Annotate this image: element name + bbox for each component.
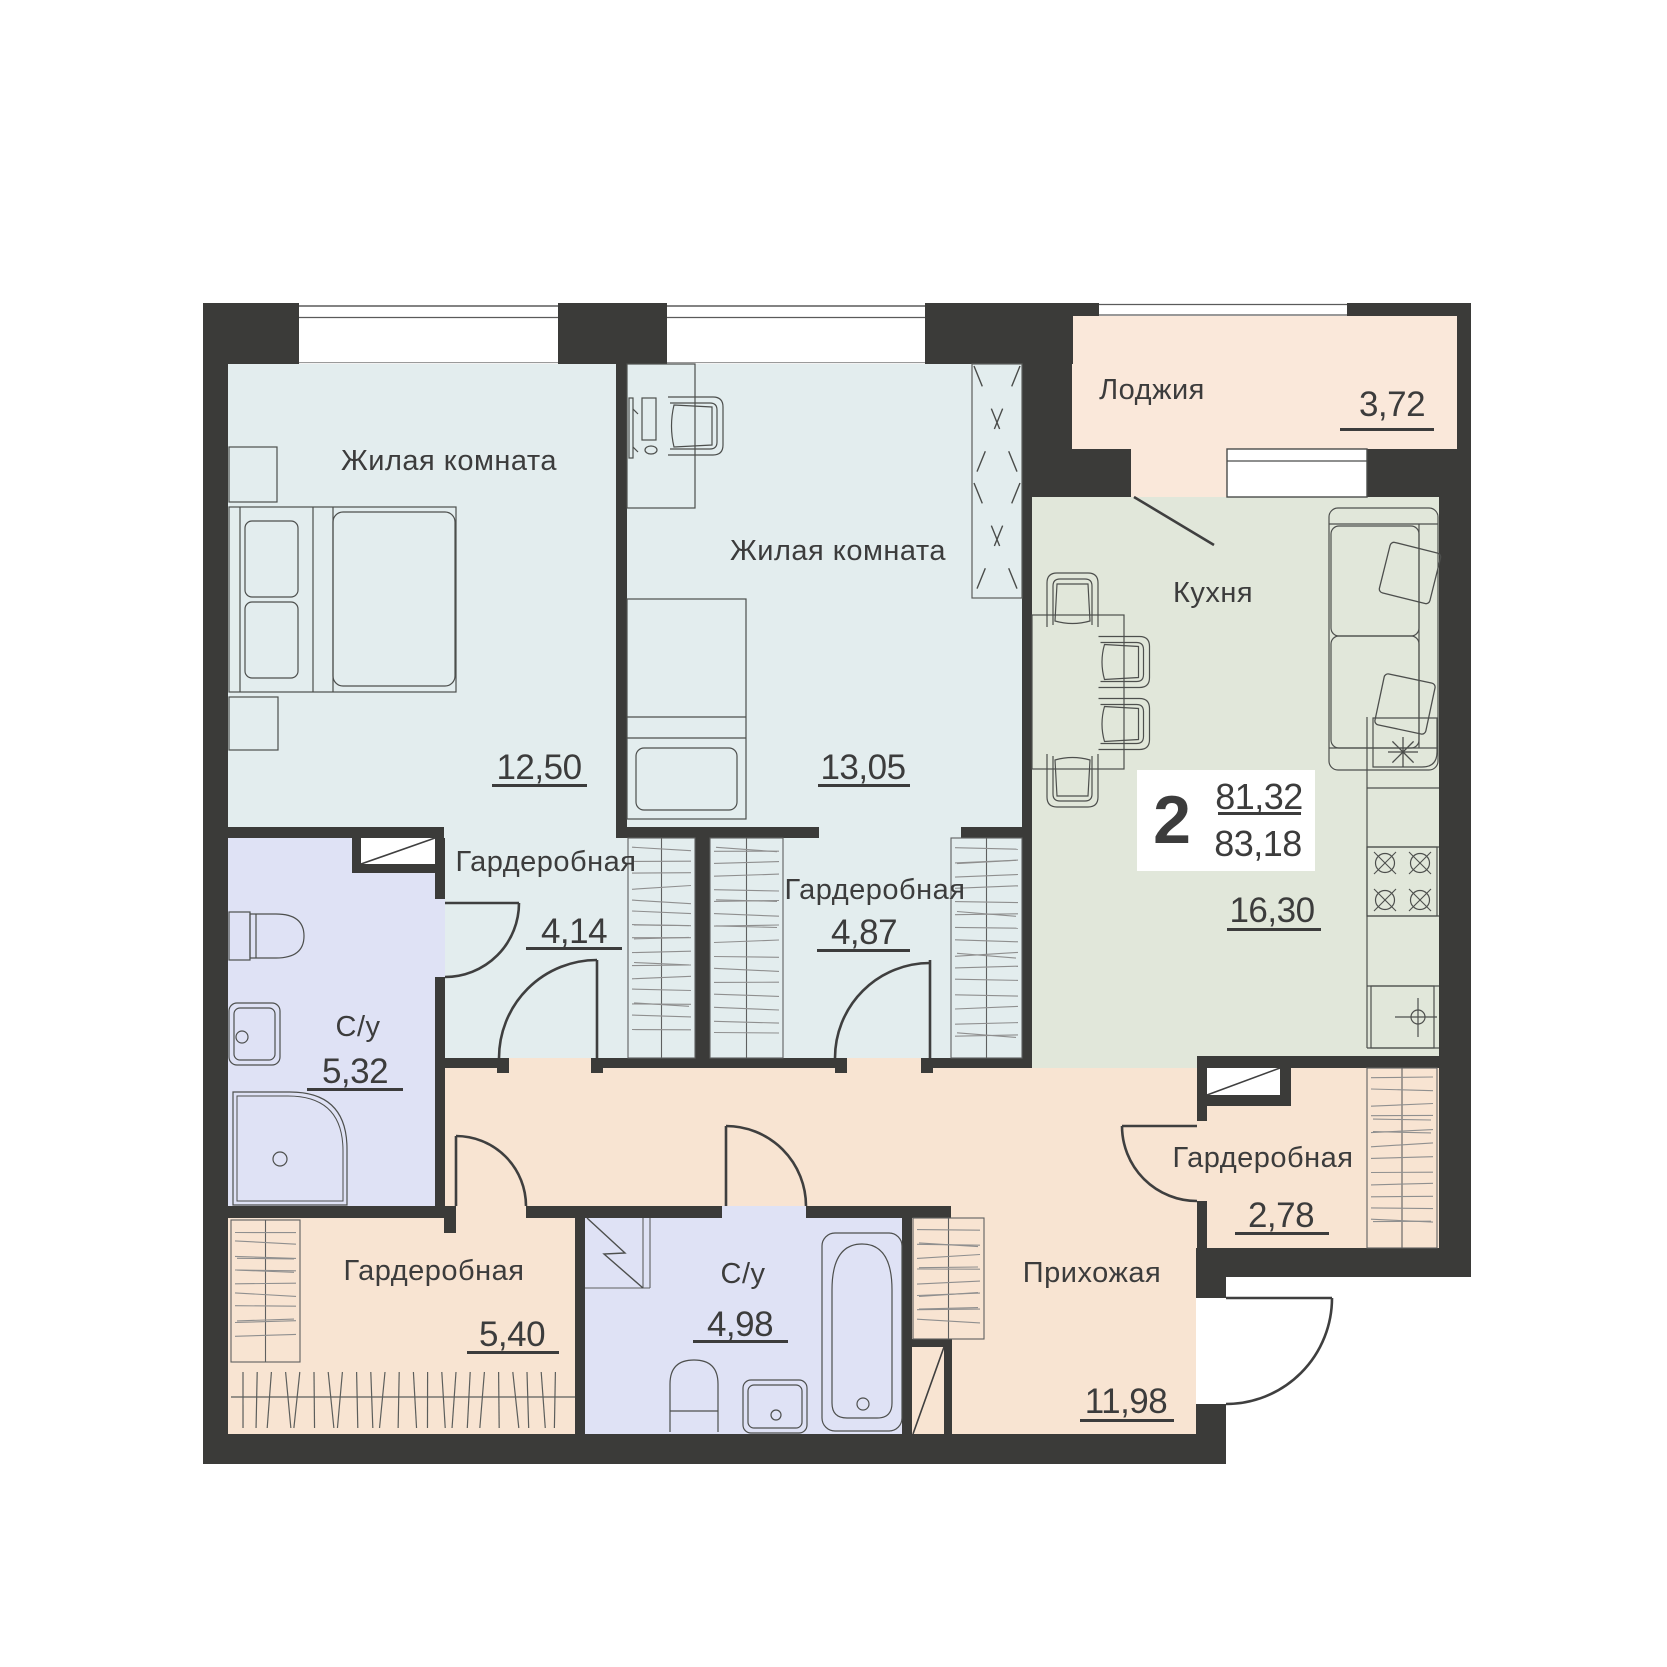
svg-text:Жилая комната: Жилая комната xyxy=(730,535,946,567)
svg-text:13,05: 13,05 xyxy=(820,748,905,787)
svg-text:Лоджия: Лоджия xyxy=(1099,374,1205,406)
svg-text:Кухня: Кухня xyxy=(1173,577,1253,609)
svg-text:5,40: 5,40 xyxy=(479,1315,545,1354)
svg-text:16,30: 16,30 xyxy=(1229,891,1314,930)
svg-text:Гардеробная: Гардеробная xyxy=(1173,1142,1354,1174)
svg-text:81,32: 81,32 xyxy=(1215,776,1303,817)
svg-text:Гардеробная: Гардеробная xyxy=(344,1255,525,1287)
svg-text:С/у: С/у xyxy=(721,1258,766,1290)
svg-text:С/у: С/у xyxy=(336,1011,381,1043)
svg-text:4,14: 4,14 xyxy=(541,912,607,951)
svg-text:Прихожая: Прихожая xyxy=(1023,1257,1161,1289)
svg-text:5,32: 5,32 xyxy=(322,1052,388,1091)
svg-text:Жилая комната: Жилая комната xyxy=(341,445,557,477)
svg-text:4,87: 4,87 xyxy=(831,913,897,952)
svg-text:83,18: 83,18 xyxy=(1214,823,1302,864)
svg-text:12,50: 12,50 xyxy=(496,748,581,787)
svg-text:3,72: 3,72 xyxy=(1359,385,1425,424)
svg-text:Гардеробная: Гардеробная xyxy=(785,874,966,906)
svg-text:Гардеробная: Гардеробная xyxy=(456,846,637,878)
svg-text:2,78: 2,78 xyxy=(1248,1196,1314,1235)
svg-text:4,98: 4,98 xyxy=(707,1305,773,1344)
svg-text:11,98: 11,98 xyxy=(1085,1382,1168,1421)
svg-text:2: 2 xyxy=(1153,782,1191,858)
